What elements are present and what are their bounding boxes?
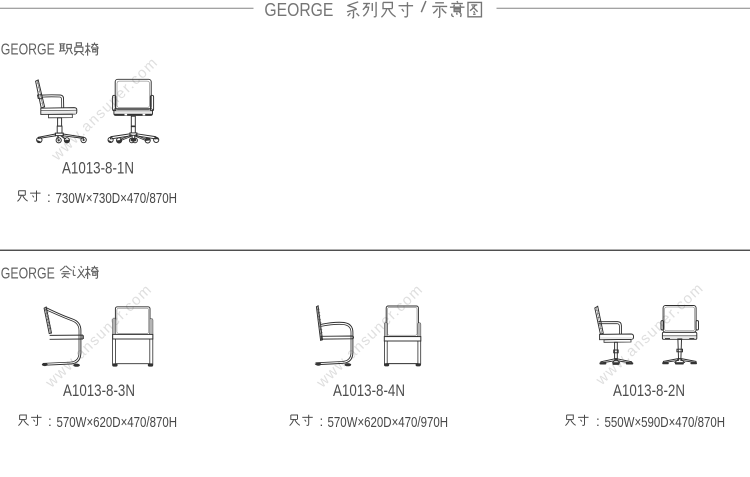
svg-text:A1013-8-4N: A1013-8-4N xyxy=(333,382,405,400)
svg-text:550W×590D×470/870H: 550W×590D×470/870H xyxy=(605,415,726,431)
svg-text:GEORGE: GEORGE xyxy=(1,266,55,283)
svg-text:A1013-8-1N: A1013-8-1N xyxy=(62,160,134,178)
svg-text:730W×730D×470/870H: 730W×730D×470/870H xyxy=(56,191,178,207)
svg-text:A1013-8-2N: A1013-8-2N xyxy=(613,382,685,400)
svg-text::: : xyxy=(47,190,51,205)
svg-text:570W×620D×470/870H: 570W×620D×470/870H xyxy=(57,415,178,431)
svg-text::: : xyxy=(596,414,600,429)
svg-text:GEORGE: GEORGE xyxy=(1,42,55,59)
svg-text:GEORGE: GEORGE xyxy=(264,0,333,20)
svg-text::: : xyxy=(48,414,52,429)
svg-text:570W×620D×470/970H: 570W×620D×470/970H xyxy=(328,415,449,431)
svg-text::: : xyxy=(320,414,324,429)
svg-text:A1013-8-3N: A1013-8-3N xyxy=(63,382,135,400)
